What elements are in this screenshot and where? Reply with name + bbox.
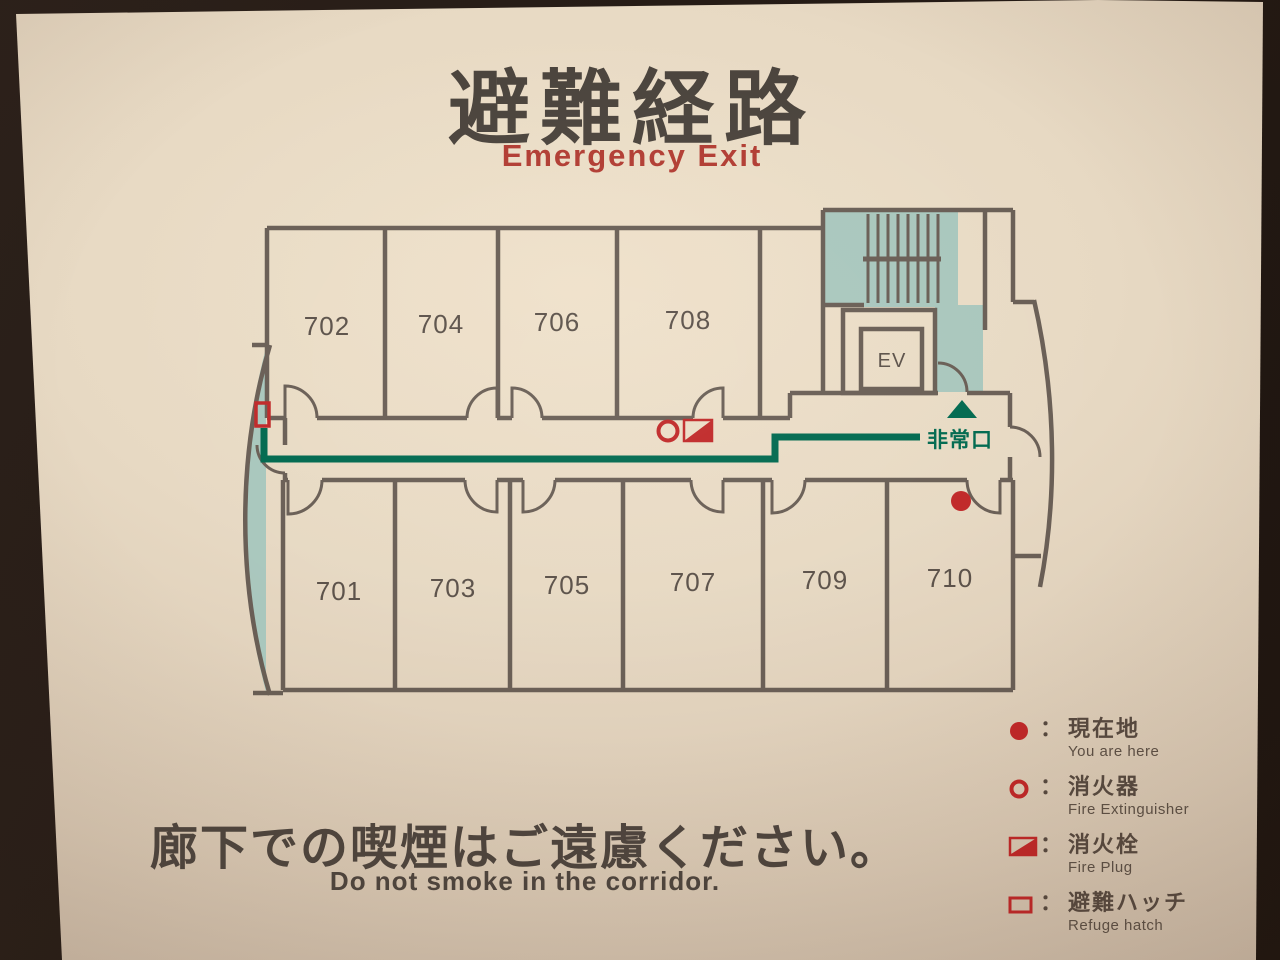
legend-row-you-are-here: ： 現在地 You are here (1008, 716, 1258, 761)
legend-row-fire-plug: ： 消火栓 Fire Plug (1008, 832, 1258, 877)
photo-background: 避難経路 Emergency Exit EV (0, 0, 1280, 960)
no-smoking-notice-english: Do not smoke in the corridor. (90, 866, 960, 897)
legend-label-en: Fire Plug (1068, 858, 1140, 877)
room-707: 707 (670, 567, 716, 597)
you-are-here-dot-icon (1008, 716, 1038, 744)
evacuation-sign-board: 避難経路 Emergency Exit EV (0, 0, 1280, 960)
emergency-exit-label: 非常口 (927, 428, 993, 452)
legend-label-jp: 避難ハッチ (1068, 890, 1188, 916)
fire-extinguisher-marker (659, 422, 678, 441)
room-702: 702 (304, 311, 350, 341)
elevator-label: EV (878, 350, 907, 372)
legend-row-refuge-hatch: ： 避難ハッチ Refuge hatch (1008, 890, 1258, 935)
legend-label-en: You are here (1068, 742, 1159, 761)
legend-label-jp: 現在地 (1068, 716, 1159, 742)
fire-plug-flag-icon (1008, 832, 1038, 860)
room-705: 705 (544, 570, 590, 600)
elevator-shaft: EV (843, 310, 935, 393)
room-708: 708 (665, 305, 711, 335)
refuge-hatch-rect-icon (1008, 890, 1038, 918)
room-704: 704 (418, 309, 464, 339)
legend-label-jp: 消火栓 (1068, 832, 1140, 858)
evacuation-route-line (264, 428, 920, 459)
room-709: 709 (802, 565, 848, 595)
legend-separator: ： (1040, 716, 1062, 742)
fire-plug-marker (684, 420, 712, 441)
legend-label-en: Refuge hatch (1068, 916, 1188, 935)
room-703: 703 (430, 573, 476, 603)
room-701: 701 (316, 576, 362, 606)
legend-label-jp: 消火器 (1068, 774, 1189, 800)
legend-row-fire-extinguisher: ： 消火器 Fire Extinguisher (1008, 774, 1258, 819)
legend-separator: ： (1040, 890, 1062, 916)
legend-separator: ： (1040, 832, 1062, 858)
legend-separator: ： (1040, 774, 1062, 800)
you-are-here-marker (951, 491, 971, 511)
room-706: 706 (534, 307, 580, 337)
fire-extinguisher-circle-icon (1008, 774, 1038, 802)
legend-label-en: Fire Extinguisher (1068, 800, 1189, 819)
exit-direction-triangle (947, 400, 977, 418)
map-legend: ： 現在地 You are here ： 消火器 Fire Extinguish… (1008, 716, 1258, 948)
room-710: 710 (927, 563, 973, 593)
